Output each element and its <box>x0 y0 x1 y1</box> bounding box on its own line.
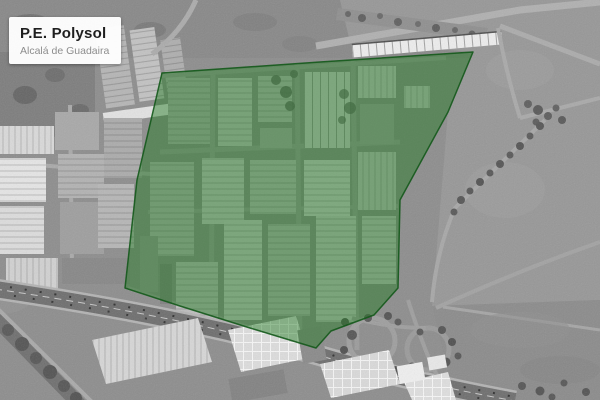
park-title: P.E. Polysol <box>20 25 109 42</box>
map-label-card: P.E. Polysol Alcalá de Guadaira <box>9 17 121 64</box>
park-subtitle: Alcalá de Guadaira <box>20 45 109 57</box>
map-canvas[interactable]: P.E. Polysol Alcalá de Guadaira <box>0 0 600 400</box>
